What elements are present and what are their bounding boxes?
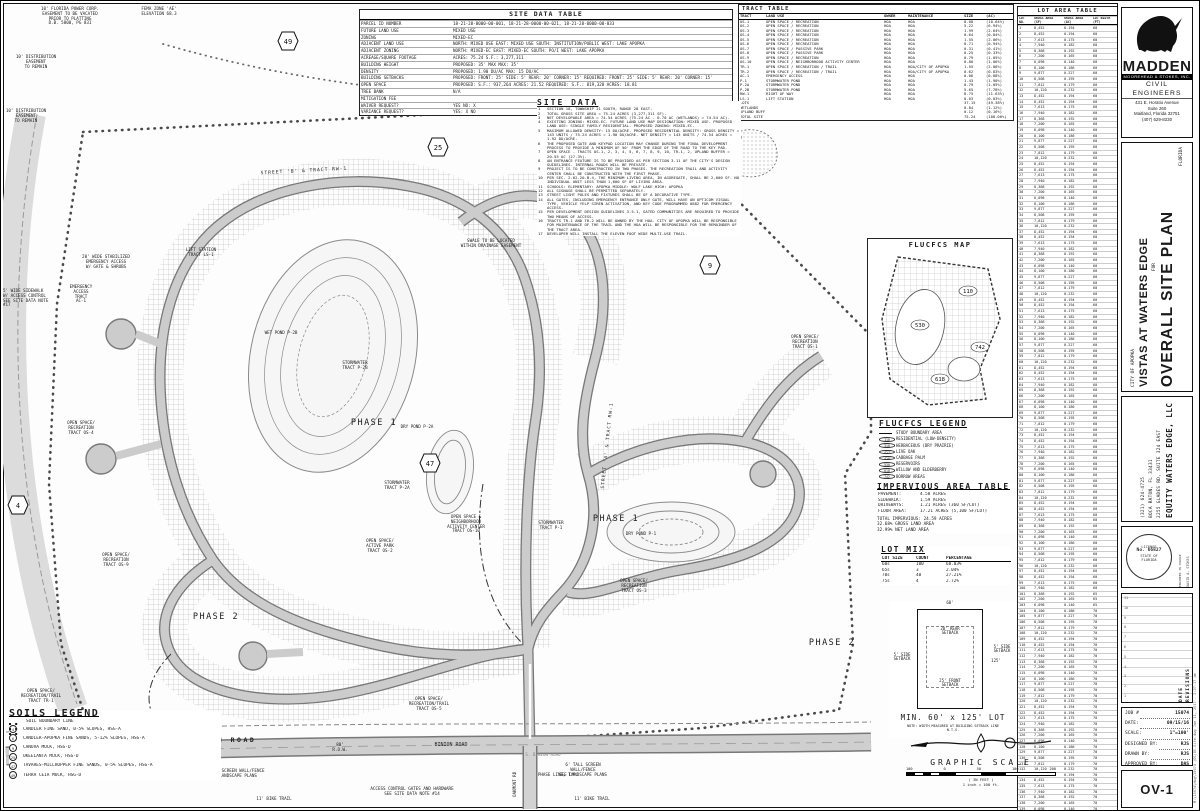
- revisions-block: 1234567891011 DATE REVISIONS: [1121, 593, 1193, 703]
- lot-area-row: 597,8120.17960: [1018, 353, 1117, 359]
- soil-marker-9: 9: [699, 255, 721, 275]
- lot-area-row: 1188,5080.19570: [1018, 687, 1117, 693]
- plan-label-tract-p1: STORMWATER TRACT P-1: [529, 521, 573, 531]
- drawing-sheet: FEMA ZONE 'AE' ELEVATION 68.3 10' FLORID…: [0, 0, 1200, 811]
- lot-area-row: 1036,0980.14065: [1018, 602, 1117, 608]
- lot-area-row: 287,9400.18260: [1018, 178, 1117, 184]
- lot-area-row: 328,1000.18660: [1018, 201, 1117, 207]
- lot-area-row: 916,0980.14060: [1018, 534, 1117, 540]
- graphic-scale-title: GRAPHIC SCALE: [886, 758, 1076, 767]
- svg-text:49: 49: [284, 38, 292, 46]
- lot-area-row: 8410,1200.23260: [1018, 495, 1117, 501]
- lot-area-row: 618,4520.19460: [1018, 365, 1117, 371]
- boundary-line-icon: [879, 433, 892, 434]
- client-name: EQUITY WATERS EDGE, LLC: [1165, 400, 1174, 518]
- revision-row-number: 3: [1123, 674, 1129, 678]
- soil-marker-49: 49: [277, 31, 299, 51]
- plan-label-tract-p2b: STORMWATER TRACT P-2B: [331, 361, 379, 371]
- job-info-row: APPROVED BY:DAS: [1124, 760, 1190, 766]
- lot-area-row: 1218,4520.19470: [1018, 704, 1117, 710]
- lot-area-row: 1179,8770.22770: [1018, 681, 1117, 687]
- lot-area-row: 568,1000.18660: [1018, 336, 1117, 342]
- lot-area-row: 907,2000.16560: [1018, 529, 1117, 535]
- plan-label-wet-pond: WET POND P-2B: [253, 331, 309, 336]
- site-data-notes: SITE DATA 1SECTION 18, TOWNSHIP 21 SOUTH…: [537, 101, 741, 236]
- lot-diagram-note: NOTE: WIDTH MEASURED AT BUILDING SETBACK…: [889, 724, 1017, 732]
- lot-area-row: 1068,5080.19570: [1018, 619, 1117, 625]
- svg-text:4: 4: [16, 502, 20, 510]
- tract-table-title: TRACT TABLE: [739, 5, 1013, 14]
- soils-legend-title: SOILS LEGEND: [9, 711, 99, 717]
- soil-boundary-item: ■ ■ ■ ■ ■ ■ SOIL BOUNDARY LINE: [9, 719, 221, 724]
- plan-label-access-gates: ACCESS CONTROL GATES AND HARDWARE SEE SI…: [357, 787, 467, 797]
- graphic-scale-ticks: 100050100200: [906, 767, 1056, 771]
- lot-area-row: 459,8770.22760: [1018, 274, 1117, 280]
- lot-area-row: 99,8770.22760: [1018, 70, 1117, 76]
- site-data-row: ZONINGMIXED-EC: [360, 34, 732, 41]
- pe-seal: LICENSE No. 66827 STATE OF FLORIDA: [1126, 534, 1172, 580]
- plan-label-tract-p2a: STORMWATER TRACT P-2A: [373, 481, 421, 491]
- lot-area-row: 647,9400.18260: [1018, 382, 1117, 388]
- impervious-title: IMPERVIOUS AREA TABLE: [877, 484, 1010, 490]
- engineer-name: DAVID A. STOKES: [1186, 529, 1190, 587]
- flucfcs-map-title: FLUCFCS MAP: [868, 239, 1012, 249]
- lot-area-row: 1147,2000.16570: [1018, 664, 1117, 670]
- north-arrow-icon: [906, 732, 1056, 754]
- plan-label-tract-os9: OPEN SPACE/ RECREATION TRACT OS-9: [93, 553, 139, 567]
- revisions-label: REVISIONS: [1186, 594, 1191, 702]
- site-note: 10PER SEC. 2.02.20.B.4, THE MINIMUM LIVI…: [537, 176, 741, 185]
- lot-area-row: 88,1000.18660: [1018, 65, 1117, 71]
- lot-area-row: 37,6130.17560: [1018, 37, 1117, 43]
- rear-setback-label: 20' REAR SETBACK: [925, 627, 975, 636]
- plan-label-phase1-east: PHASE 1: [581, 515, 651, 525]
- lot-area-row: 167,9400.18260: [1018, 110, 1117, 116]
- lot-area-row: 47,9400.18260: [1018, 42, 1117, 48]
- plan-label-oakmont-rd: OAKMONT RD: [513, 763, 518, 805]
- lot-area-row: 1027,2000.16565: [1018, 596, 1117, 602]
- lot-area-row: 957,8120.17960: [1018, 557, 1117, 563]
- revisions-date-label: DATE: [1179, 594, 1184, 702]
- lot-area-row: 939,8770.22760: [1018, 546, 1117, 552]
- lot-area-row: 637,6130.17560: [1018, 376, 1117, 382]
- soil-marker-4: 4: [7, 495, 29, 515]
- svg-text:9: 9: [708, 262, 712, 270]
- graphic-scale-units: ( IN FEET ) 1 inch = 100 ft.: [886, 777, 1076, 787]
- lot-area-row: 667,2000.16560: [1018, 393, 1117, 399]
- svg-text:47: 47: [426, 460, 434, 468]
- lot-area-row: 1059,8770.22770: [1018, 613, 1117, 619]
- revision-row-number: 8: [1123, 625, 1129, 629]
- lot-area-row: 717,8120.17960: [1018, 421, 1117, 427]
- lot-area-row: 738,4520.19460: [1018, 432, 1117, 438]
- plan-label-binion-road-2: BINION ROAD: [421, 743, 481, 749]
- site-note: 7OPEN SPACE - TRACTS OS-1, 2, 3, 4, 5, 6…: [537, 150, 741, 159]
- lot-area-row: 58,3680.19260: [1018, 48, 1117, 54]
- plan-label-swale: SWALE TO BE LOCATED WITHIN DRAINAGE EASE…: [453, 239, 529, 249]
- lot-area-row: 12010,1200.23270: [1018, 698, 1117, 704]
- side-setback-right-label: 5' SIDE SETBACK: [987, 645, 1017, 654]
- site-data-row: ADJACENT ZONINGNORTH: MIXED-EC EAST: MIX…: [360, 47, 732, 54]
- lot-area-row: 498,4520.19460: [1018, 297, 1117, 303]
- lot-area-row: 676,0980.14060: [1018, 399, 1117, 405]
- side-setback-left-label: 5' SIDE SETBACK: [889, 653, 915, 662]
- lot-area-row: 1117,6130.17570: [1018, 647, 1117, 653]
- rhino-logo: [1131, 10, 1183, 54]
- lot-area-row: 579,8770.22760: [1018, 342, 1117, 348]
- lot-area-row: 3610,1200.23260: [1018, 223, 1117, 229]
- sheet-number-box: OV-1: [1121, 770, 1193, 808]
- plan-label-bike-trail-2: 11' BIKE TRAIL: [249, 797, 299, 802]
- sheet-title-city: CITY OF APOPKA: [1131, 349, 1136, 387]
- plan-label-tract-tr1: OPEN SPACE/ RECREATION/TRAIL TRACT TR-1: [9, 689, 73, 703]
- plan-label-row-80: 80' R.O.W.: [327, 743, 353, 753]
- plan-label-phase2-east: PHASE 2: [797, 639, 867, 649]
- revision-row-number: 4: [1123, 665, 1129, 669]
- lot-area-row: 187,2000.16560: [1018, 121, 1117, 127]
- site-data-row: OPEN SPACEPROPOSED: S.F.: 937,264 ACRES:…: [360, 81, 732, 88]
- lot-area-row: 877,6130.17560: [1018, 512, 1117, 518]
- lot-area-row: 527,9400.18260: [1018, 314, 1117, 320]
- lot-area-row: 357,8120.17960: [1018, 218, 1117, 224]
- plan-label-fpc-easement: 10' FLORIDA POWER CORP. EASEMENT TO BE V…: [35, 7, 105, 26]
- plan-label-emerg-access-note: 20' WIDE STABILIZED EMERGENCY ACCESS W/ …: [79, 255, 133, 269]
- site-note: 15PER DEVELOPMENT DESIGN GUIDELINES 3.5.…: [537, 210, 741, 219]
- lot-area-row: 468,5080.19560: [1018, 280, 1117, 286]
- lot-area-row: 427,2000.16560: [1018, 257, 1117, 263]
- lot-area-row: 538,3680.19260: [1018, 319, 1117, 325]
- site-note: 5MAXIMUM ALLOWED DENSITY: 15 DU/ACRE. PR…: [537, 129, 741, 142]
- firm-name: MADDEN: [1122, 59, 1192, 74]
- flucfcs-legend-title: FLUCFCS LEGEND: [879, 421, 967, 428]
- soil-legend-item: 47TAVARES-MILLHOPPER FINE SANDS, 0-5% SL…: [9, 762, 221, 770]
- sheet-title-state: FLORIDA: [1179, 147, 1184, 166]
- plan-label-phase-line-2: PHASE LINE, TYP.: [533, 773, 583, 778]
- site-data-notes-title: SITE DATA: [537, 101, 741, 105]
- lot-area-row: 767,9400.18260: [1018, 449, 1117, 455]
- lot-area-row: 708,5080.19560: [1018, 415, 1117, 421]
- soil-legend-item: 9CANOVA MUCK, HSG-D: [9, 744, 221, 752]
- revision-row-number: 9: [1123, 616, 1129, 620]
- lot-area-row: 556,0980.14060: [1018, 331, 1117, 337]
- plan-label-dry-pond-p1: DRY POND P-1: [613, 532, 669, 537]
- engineer-in-charge-label: ENGINEER IN CHARGE: [1178, 529, 1182, 587]
- lot-area-row: 1197,8120.17970: [1018, 693, 1117, 699]
- lot-area-row: 1127,9400.18270: [1018, 653, 1117, 659]
- plan-label-tract-ac1: EMERGENCY ACCESS TRACT AC-1: [63, 285, 99, 304]
- lot-area-row: 778,3680.19260: [1018, 455, 1117, 461]
- lot-area-row: 928,1000.18660: [1018, 540, 1117, 546]
- revision-row-number: 7: [1123, 635, 1129, 639]
- lot-area-row: 1168,1000.18670: [1018, 676, 1117, 682]
- lot-area-row: 1387,2000.16570: [1018, 800, 1117, 806]
- site-data-row: TREE BANKN/A: [360, 88, 732, 95]
- lot-area-row: 196,0980.14060: [1018, 127, 1117, 133]
- soil-legend-item: 25OKEELANTA MUCK, HSG-D: [9, 753, 221, 761]
- lot-area-row: 688,1000.18660: [1018, 404, 1117, 410]
- tract-table: TRACT TABLE TRACT LAND USE OWNER MAINTEN…: [738, 4, 1014, 121]
- site-note: 17DEVELOPER WILL INSTALL THE ELEVEN FOOT…: [537, 232, 741, 236]
- soil-marker-25: 25: [427, 137, 449, 157]
- lot-setback-diagram: 60' 20' REAR SETBACK 25' FRONT SETBACK 5…: [889, 601, 1017, 739]
- revision-row-number: 10: [1123, 606, 1129, 610]
- lot-area-row: 258,4520.19460: [1018, 161, 1117, 167]
- lot-area-row: 397,6130.17560: [1018, 240, 1117, 246]
- lot-area-row: 517,6130.17560: [1018, 308, 1117, 314]
- plan-label-tract-os4: OPEN SPACE/ RECREATION TRACT OS-4: [59, 421, 103, 435]
- plan-label-sidewalk: 5' WIDE SIDEWALK W/ ACCESS CONTROL SEE S…: [3, 289, 55, 308]
- lot-area-row: 407,9400.18260: [1018, 246, 1117, 252]
- lot-area-row: 339,8770.22760: [1018, 206, 1117, 212]
- lot-area-row: 1098,4520.19470: [1018, 636, 1117, 642]
- lot-area-row: 157,6130.17560: [1018, 104, 1117, 110]
- lot-area-row: 508,4520.19460: [1018, 302, 1117, 308]
- flucfcs-map-graphic: 530 110 618 742: [868, 249, 1012, 413]
- plan-label-dry-pond-p2a: DRY POND P-2A: [391, 425, 443, 430]
- lot-area-row: 898,3680.19260: [1018, 523, 1117, 529]
- lot-area-row: 1138,3680.19270: [1018, 659, 1117, 665]
- graphic-scale-bar: [906, 772, 1056, 776]
- lot-area-row: 1156,0980.14070: [1018, 670, 1117, 676]
- revision-row-number: 6: [1123, 645, 1129, 649]
- plan-label-bike-trail-1: 11' BIKE TRAIL: [567, 797, 617, 802]
- lot-area-row: 67,2000.16560: [1018, 53, 1117, 59]
- lot-area-row: 76,0980.14060: [1018, 59, 1117, 65]
- plan-label-dist-easement-1: 10' DISTRIBUTION EASEMENT TO REMAIN: [13, 55, 59, 69]
- sheet-number: OV-1: [1140, 782, 1174, 797]
- lot-area-row: 388,4520.19460: [1018, 234, 1117, 240]
- lot-area-row: 2410,1200.23260: [1018, 155, 1117, 161]
- plot-stamp: M:\15074\dwg\15074 (OS)OV-Site.dwg Jan 1…: [1193, 563, 1197, 803]
- lot-area-row: 7210,1200.23260: [1018, 427, 1117, 433]
- lot-area-row: 1018,3680.19265: [1018, 591, 1117, 597]
- lot-area-row: 6010,1200.23260: [1018, 359, 1117, 365]
- sheet-title-project: VISTAS AT WATERS EDGE: [1138, 147, 1150, 387]
- site-data-row: BUILDING SETBACKSPROPOSED: FRONT: 25' SI…: [360, 74, 732, 81]
- lot-width-dim: 60': [917, 601, 983, 605]
- lot-area-row: 316,0980.14060: [1018, 195, 1117, 201]
- site-data-table-title: SITE DATA TABLE: [360, 10, 732, 20]
- client-phone: (321) 624-4725: [1141, 400, 1146, 518]
- lot-area-row: 228,5080.19560: [1018, 144, 1117, 150]
- lot-area-row: 219,8770.22760: [1018, 138, 1117, 144]
- sheet-title-main: OVERALL SITE PLAN: [1159, 147, 1177, 387]
- svg-text:110: 110: [963, 289, 973, 295]
- firm-profession: CIVIL ENGINEERS: [1122, 80, 1192, 99]
- lot-mix-header: LOT SIZE COUNT PERCENTAGE: [881, 556, 1011, 563]
- lot-area-row: 858,4520.19460: [1018, 500, 1117, 506]
- plan-label-s-binion-road: S. BINION ROAD: [513, 753, 573, 758]
- plan-label-tract-os3: OPEN SPACE/ RECREATION TRACT OS-3: [611, 579, 657, 593]
- lot-outline: [917, 609, 983, 709]
- lot-area-row: 448,1000.18660: [1018, 268, 1117, 274]
- firm-block: MADDEN MOOREHEAD & STOKES, INC. CIVIL EN…: [1121, 7, 1193, 138]
- lot-area-row: 1007,9400.18260: [1018, 585, 1117, 591]
- site-data-row: FUTURE LAND USEMIXED USE: [360, 27, 732, 34]
- soil-legend-item: 49TERRA CEIA MUCK, HSG-D: [9, 771, 221, 779]
- site-note: 4EXISTING ZONING: MIXED-EC. FUTURE LAND …: [537, 120, 741, 129]
- lot-area-row: 828,5080.19560: [1018, 483, 1117, 489]
- title-block-strip: MADDEN MOOREHEAD & STOKES, INC. CIVIL EN…: [1117, 3, 1197, 808]
- lot-area-row: 1367,9400.18270: [1018, 789, 1117, 795]
- lot-area-row: 237,8120.17960: [1018, 150, 1117, 156]
- lot-area-row: 887,9400.18260: [1018, 517, 1117, 523]
- lot-area-row: 757,6130.17560: [1018, 444, 1117, 450]
- wet-pond-p2b: [225, 222, 441, 491]
- lot-depth-dim: 125': [985, 659, 1007, 663]
- flucfcs-map: FLUCFCS MAP 530 110 618 742: [867, 238, 1013, 418]
- lot-area-row: 348,5080.19560: [1018, 212, 1117, 218]
- lot-area-row: 988,4520.19460: [1018, 574, 1117, 580]
- lot-area-row: 208,1000.18660: [1018, 133, 1117, 139]
- soil-legend-item: 6CANDLER-APOPKA FINE SANDS, 5-12% SLOPES…: [9, 734, 221, 742]
- lot-area-row: 1396,0980.14070: [1018, 806, 1117, 811]
- lot-area-row: 948,5080.19560: [1018, 551, 1117, 557]
- lot-diagram-caption: MIN. 60' x 125' LOT: [889, 713, 1017, 722]
- lot-area-row: 748,4520.19460: [1018, 438, 1117, 444]
- lot-area-row: 588,5080.19560: [1018, 348, 1117, 354]
- engineer-seal-block: LICENSE No. 66827 STATE OF FLORIDA DAVID…: [1121, 526, 1193, 588]
- lot-area-row: 787,2000.16560: [1018, 461, 1117, 467]
- impervious-area-table: IMPERVIOUS AREA TABLE PAVEMENT:4.58 ACRE…: [877, 484, 1017, 533]
- sheet-title-block: CITY OF APOPKA VISTAS AT WATERS EDGE FOR…: [1121, 142, 1193, 392]
- site-data-row: PARCEL ID NUMBER18-21-28-0000-00-001, 18…: [360, 20, 732, 27]
- lot-mix-title: LOT MIX: [881, 547, 925, 554]
- lot-area-row: 628,4520.19460: [1018, 370, 1117, 376]
- site-data-row: BUILDING HEIGHTPROPOSED: 35' MAX MAX: 35…: [360, 61, 732, 68]
- lot-area-row: 1237,6130.17570: [1018, 715, 1117, 721]
- revision-row-number: 11: [1123, 596, 1129, 600]
- lot-area-row: 808,1000.18660: [1018, 472, 1117, 478]
- plan-label-phase2-west: PHASE 2: [181, 613, 251, 623]
- firm-address: 431 E. Horatio Avenue Suite 260 Maitland…: [1122, 99, 1192, 122]
- svg-text:742: 742: [975, 345, 985, 351]
- job-info-row: DRAWN BY:RJS: [1124, 750, 1190, 760]
- revision-row-number: 2: [1123, 684, 1129, 688]
- lot-area-row: 307,2000.16560: [1018, 189, 1117, 195]
- lot-area-row: 117,8120.17960: [1018, 82, 1117, 88]
- flucfcs-legend: FLUCFCS LEGEND STUDY BOUNDARY AREA 110RE…: [879, 421, 1013, 480]
- lot-area-row: 108,5080.19560: [1018, 76, 1117, 82]
- soils-legend: SOILS LEGEND ■ ■ ■ ■ ■ ■ SOIL BOUNDARY L…: [9, 711, 221, 780]
- lot-area-row: 18,4520.19460: [1018, 25, 1117, 31]
- site-note: 14ALL GATES, INCLUDING EMERGENCY ENTRANC…: [537, 198, 741, 211]
- lot-mix-row: 75s42.72%: [881, 579, 1011, 585]
- lot-area-table-header: LOT NO. GROSS AREA (SF) GROSS AREA (AC) …: [1018, 16, 1117, 25]
- lot-area-row: 796,0980.14060: [1018, 466, 1117, 472]
- lot-area-row: 148,4520.19460: [1018, 99, 1117, 105]
- lot-area-row: 178,3680.19260: [1018, 116, 1117, 122]
- lot-area-table-title: LOT AREA TABLE: [1018, 7, 1117, 16]
- lot-area-row: 547,2000.16560: [1018, 325, 1117, 331]
- soil-legend-item: 4CANDLER FINE SAND, 0-5% SLOPES, HSG-A: [9, 725, 221, 733]
- site-note: 9PROJECT IS TO BE CONSTRUCTED IN TWO PHA…: [537, 167, 741, 176]
- front-setback-label: 25' FRONT SETBACK: [925, 679, 975, 688]
- lot-area-row: 658,3680.19260: [1018, 387, 1117, 393]
- revision-row-number: 5: [1123, 655, 1129, 659]
- lot-area-row: 4810,1200.23260: [1018, 291, 1117, 297]
- lot-area-row: 378,4520.19460: [1018, 229, 1117, 235]
- lot-area-row: 997,6130.17560: [1018, 580, 1117, 586]
- lot-area-row: 138,4520.19460: [1018, 93, 1117, 99]
- site-note: 16TRACTS TR-1 AND TR-2 WILL BE OWNED BY …: [537, 219, 741, 232]
- lot-area-row: 477,8120.17960: [1018, 285, 1117, 291]
- job-info-row: DESIGNED BY:RJS: [1124, 740, 1190, 750]
- plan-label-tract-os1: OPEN SPACE/ RECREATION TRACT OS-1: [783, 335, 827, 349]
- job-info-row: DATE:09/15/16: [1124, 719, 1190, 729]
- lot-area-row: 699,8770.22760: [1018, 410, 1117, 416]
- soil-marker-47: 47: [419, 453, 441, 473]
- impervious-row: FLOOR AREA:17.21 ACRES (5,100 SF/LOT): [877, 509, 1017, 514]
- lot-area-row: 10810,1200.23270: [1018, 630, 1117, 636]
- lot-area-row: 9610,1200.23260: [1018, 563, 1117, 569]
- site-note: 6THE PROPOSED GATE AND KEYPAD LOCATION M…: [537, 142, 741, 151]
- lot-area-row: 978,4520.19460: [1018, 568, 1117, 574]
- site-note: 8AN ENTRANCE FEATURE IS TO BE PROVIDED A…: [537, 159, 741, 168]
- svg-text:618: 618: [935, 377, 945, 383]
- lot-area-row: 1378,3680.19270: [1018, 794, 1117, 800]
- lot-area-row: 277,6130.17560: [1018, 172, 1117, 178]
- lot-area-row: 1108,4520.19470: [1018, 642, 1117, 648]
- lot-area-row: 436,0980.14060: [1018, 263, 1117, 269]
- lot-area-row: 418,3680.19260: [1018, 251, 1117, 257]
- client-street: 2255 GLADES RD, SUITE 324 EAST: [1157, 400, 1162, 518]
- job-info-row: JOB #15074: [1124, 709, 1190, 719]
- lot-area-row: 298,3680.19260: [1018, 184, 1117, 190]
- site-data-row: ADJACENT LAND USENORTH: MIXED USE EAST: …: [360, 40, 732, 47]
- lot-area-row: 28,4520.19460: [1018, 31, 1117, 37]
- site-data-row: ACREAGE/SQUARE FOOTAGEACRES: 75.24 S.F.:…: [360, 54, 732, 61]
- lot-area-row: 837,8120.17960: [1018, 489, 1117, 495]
- sheet-title-for: FOR: [1152, 263, 1157, 271]
- lot-mix-table: LOT MIX LOT SIZE COUNT PERCENTAGE 60s100…: [881, 547, 1011, 585]
- tract-row: TOTAL SITE AREA75.24(100.00%): [739, 115, 1013, 120]
- revision-row-number: 1: [1123, 694, 1129, 698]
- plan-label-tract-os5: OPEN SPACE/ RECREATION/TRAIL TRACT OS-5: [399, 697, 459, 711]
- client-block: (321) 624-4725 BOCA RATON, FL 33431 2255…: [1121, 396, 1193, 522]
- lot-area-row: 268,4520.19460: [1018, 167, 1117, 173]
- flucfcs-legend-item: 742BORROW AREAS: [879, 474, 1013, 480]
- lot-area-row: 1210,1200.23260: [1018, 87, 1117, 93]
- impervious-totals: TOTAL IMPERVIOUS: 24.59 ACRES 32.68% GRO…: [877, 517, 1017, 533]
- lot-area-row: 1247,9400.18270: [1018, 721, 1117, 727]
- svg-text:530: 530: [915, 323, 925, 329]
- lot-area-table: LOT AREA TABLE LOT NO. GROSS AREA (SF) G…: [1017, 6, 1118, 811]
- plan-label-lift-station: LIFT STATION TRACT LS-1: [179, 248, 223, 258]
- plan-label-tract-os10: OPEN SPACE & NEIGHBORHOOD ACTIVITY CENTE…: [439, 515, 493, 534]
- lot-area-row: 1077,8120.17970: [1018, 625, 1117, 631]
- lot-area-row: 1228,4520.19470: [1018, 710, 1117, 716]
- lot-area-row: 868,4520.19460: [1018, 506, 1117, 512]
- job-info-block: JOB #15074DATE:09/15/16SCALE:1"=100'DESI…: [1121, 707, 1193, 766]
- plan-label-tract-os2: OPEN SPACE/ ACTIVE PARK TRACT OS-2: [357, 539, 403, 553]
- client-city: BOCA RATON, FL 33431: [1149, 400, 1154, 518]
- lot-area-row: 819,8770.22760: [1018, 478, 1117, 484]
- plan-label-fema-1: FEMA ZONE 'AE' ELEVATION 68.3: [129, 7, 189, 17]
- lot-area-row: 1048,1000.18670: [1018, 608, 1117, 614]
- graphic-scale: GRAPHIC SCALE 100050100200 ( IN FEET ) 1…: [886, 732, 1076, 787]
- plan-label-dist-easement-2: 10' DISTRIBUTION EASEMENT TO REMAIN: [3, 109, 49, 123]
- job-info-row: SCALE:1"=100': [1124, 729, 1190, 739]
- svg-text:25: 25: [434, 144, 442, 152]
- site-data-row: DENSITYPROPOSED: 1.90 DU/AC MAX: 15 DU/A…: [360, 68, 732, 75]
